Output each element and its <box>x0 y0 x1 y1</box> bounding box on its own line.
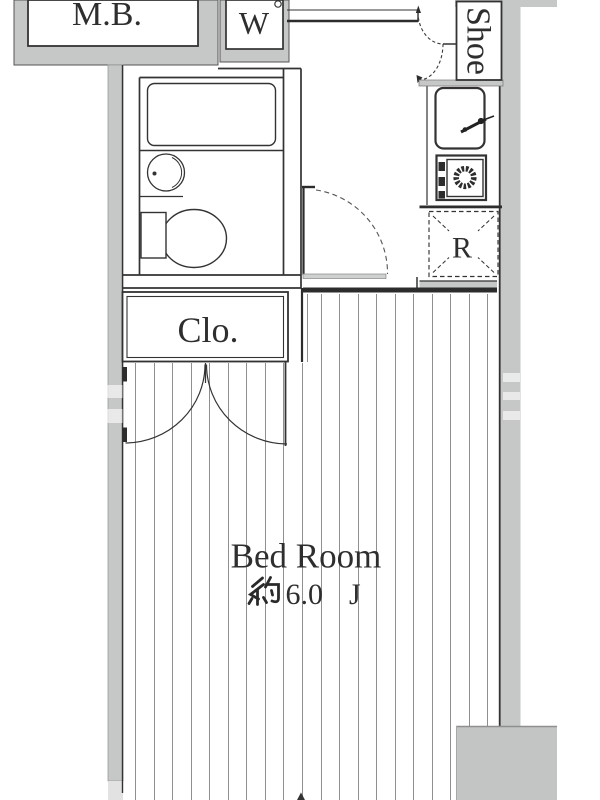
svg-text:Clo.: Clo. <box>177 310 238 350</box>
svg-text:6.0: 6.0 <box>286 578 324 611</box>
svg-text:Bed Room: Bed Room <box>231 537 382 576</box>
svg-text:M.B.: M.B. <box>72 0 142 33</box>
svg-text:J: J <box>349 578 361 611</box>
svg-text:R: R <box>452 232 472 265</box>
svg-text:Shoe: Shoe <box>460 7 497 75</box>
svg-text:W: W <box>239 5 270 41</box>
